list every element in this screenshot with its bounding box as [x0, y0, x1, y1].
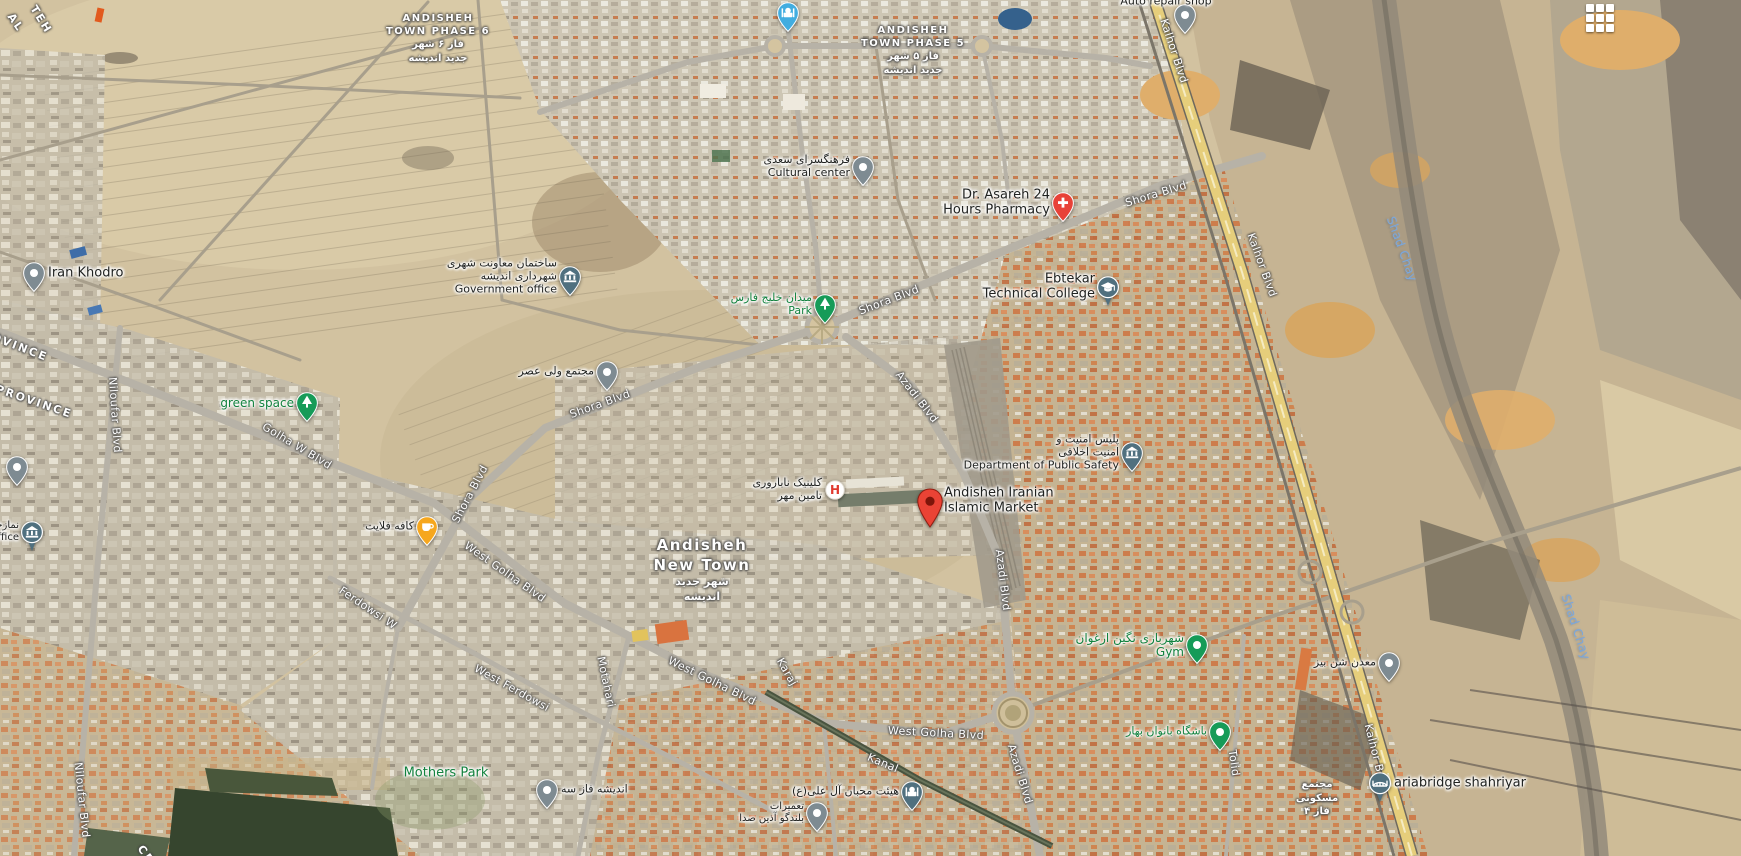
- province-label-al: AL: [5, 11, 27, 35]
- poi-label-vali-asr-complex[interactable]: مجتمع ولی عصر: [518, 366, 594, 379]
- poi-label-banovan-bahar-club[interactable]: باشگاه بانوان بهار: [1126, 726, 1207, 739]
- destination-marker-icon[interactable]: [917, 488, 943, 532]
- bank-pin-icon-government-office[interactable]: [559, 266, 581, 300]
- tree-pin-icon-green-space[interactable]: [296, 392, 318, 426]
- road-label-shora-blvd: Shora Blvd: [449, 463, 490, 525]
- water-label-shad-chay: Shad Chay: [1559, 592, 1593, 661]
- road-label-kalhor-blvd: Kalhor Blvd: [1244, 231, 1279, 298]
- poi-label-speaker-repair[interactable]: تعمیراتبلندگو آذین صدا: [739, 801, 804, 825]
- dot-pin-icon-auto-repair-shop[interactable]: [1174, 4, 1196, 38]
- road-label-azadi-blvd: Azadi Blvd: [993, 549, 1013, 612]
- poi-label-government-office[interactable]: ساختمان معاونت شهریشهرداری اندیشهGovernm…: [447, 258, 557, 297]
- green-dot-pin-icon-banovan-bahar-club[interactable]: [1209, 721, 1231, 755]
- water-label-shad-chay: Shad Chay: [1384, 215, 1420, 284]
- dot-pin-icon-sand-mine[interactable]: [1378, 652, 1400, 686]
- road-label-ferdowsi-w: Ferdowsi W: [337, 584, 400, 632]
- dot-pin-icon-speaker-repair[interactable]: [806, 802, 828, 836]
- poi-label-cafe-flight[interactable]: کافه فلایت: [365, 521, 414, 534]
- poi-label-khalij-fars-park[interactable]: میدان خلیج فارسPark: [731, 292, 812, 318]
- road-label-west-golha-blvd: West Golha Blvd: [666, 654, 758, 708]
- poi-label-andisheh-phase-3[interactable]: اندیشه فاز سه: [561, 784, 628, 797]
- road-label-shora-blvd: Shora Blvd: [1124, 178, 1189, 209]
- dot-pin-icon-cultural-center[interactable]: [852, 156, 874, 190]
- apps-grid-icon[interactable]: [1586, 4, 1616, 34]
- area-label-residential-complex: مجتمعمسکونیفاز ۴: [1296, 778, 1338, 819]
- poi-label-mothers-park[interactable]: Mothers Park: [404, 765, 489, 780]
- poi-label-cultural-center[interactable]: فرهنگسرای سعدیCultural center: [764, 154, 850, 180]
- province-label-ce: CE: [135, 843, 157, 856]
- hospital-pin-icon-infertility-clinic[interactable]: H: [825, 480, 845, 504]
- school-pin-icon-ebtekar-college[interactable]: [1096, 276, 1120, 311]
- map-labels-layer: Shora BlvdShora BlvdShora BlvdShora Blvd…: [0, 0, 1741, 856]
- road-label-golha-w-blvd: Golha W Blvd: [260, 420, 334, 472]
- poi-label-office-left-edge[interactable]: نمازخانهffice: [0, 520, 19, 544]
- poi-label-sand-mine[interactable]: معدن شن بیز: [1314, 657, 1376, 670]
- dot-pin-icon-iran-khodro[interactable]: [23, 262, 45, 296]
- poi-label-mohebban-ali-heyat[interactable]: هیئت محبان آل علی(ع): [792, 786, 899, 799]
- dot-pin-icon-vali-asr-complex[interactable]: [596, 361, 618, 395]
- mosque-dark-pin-icon-mohebban-ali-heyat[interactable]: [901, 781, 923, 815]
- road-label-shora-blvd: Shora Blvd: [857, 283, 921, 318]
- road-label-west-golha-blvd: West Golha Blvd: [888, 724, 985, 742]
- province-label-teh: TEH: [27, 3, 54, 36]
- poi-label-green-space[interactable]: green space: [220, 396, 294, 410]
- road-label-kanal: Kanal: [865, 751, 900, 776]
- road-label-west-golha-blvd: West Golha Blvd: [462, 539, 548, 605]
- poi-label-infertility-clinic[interactable]: کلینیک ناباروریتامین مهر: [752, 477, 822, 503]
- poi-label-asareh-pharmacy[interactable]: Dr. Asareh 24Hours Pharmacy: [943, 188, 1050, 219]
- poi-label-ebtekar-college[interactable]: EbtekarTechnical College: [983, 272, 1095, 303]
- dot-pin-icon-andisheh-phase-3[interactable]: [536, 779, 558, 813]
- poi-label-iran-khodro[interactable]: Iran Khodro: [48, 265, 124, 280]
- cafe-pin-icon-cafe-flight[interactable]: [416, 516, 438, 550]
- road-label-motahari: Motahari: [594, 655, 617, 708]
- bridge-pin-icon-ariabridge-shahriyar[interactable]: [1368, 772, 1392, 807]
- road-label-niloufar-blvd: Niloufar Blvd: [72, 762, 93, 839]
- bank-pin-icon-public-safety[interactable]: [1121, 442, 1143, 476]
- poi-label-gym[interactable]: شهربازی نگین ارغوانGym: [1076, 631, 1185, 659]
- road-label-niloufar-blvd: Niloufar Blvd: [106, 377, 124, 454]
- dot-pin-icon-poi-left-edge[interactable]: [6, 456, 28, 490]
- province-label-province: PROVINCE: [0, 382, 74, 421]
- road-label-kalhor-b: Kalhor B: [1362, 723, 1387, 774]
- svg-text:H: H: [830, 483, 840, 497]
- poi-label-public-safety[interactable]: پلیس امنیت وامنیت اخلاقیDepartment of Pu…: [964, 434, 1119, 473]
- province-label-ovince: OVINCE: [0, 330, 50, 364]
- bank-circle-pin-icon-office-left-edge[interactable]: [20, 521, 44, 556]
- poi-label-auto-repair-shop[interactable]: Auto repair shop: [1120, 0, 1211, 8]
- road-label-karaj: Karaj: [774, 656, 800, 689]
- area-label-town-phase-5: ANDISHEHTOWN PHASE 5فاز ۵ شهرجدید اندیشه: [861, 24, 965, 77]
- tree-pin-icon-khalij-fars-park[interactable]: [814, 294, 836, 328]
- area-label-andisheh-new-town: AndishehNew Townشهر جدیداندیشه: [654, 536, 751, 605]
- poi-label-ariabridge-shahriyar[interactable]: ariabridge shahriyar: [1394, 775, 1526, 790]
- road-label-west-ferdowsi: West Ferdowsi: [472, 662, 552, 714]
- poi-label-islamic-market[interactable]: Andisheh IranianIslamic Market: [944, 486, 1054, 517]
- mosque-pin-icon-mosque-north[interactable]: [777, 2, 799, 36]
- pharmacy-pin-icon-asareh-pharmacy[interactable]: [1052, 192, 1074, 226]
- road-label-azadi-blvd: Azadi Blvd: [1005, 743, 1035, 806]
- road-label-azadi-blvd: Azadi Blvd: [893, 369, 941, 426]
- green-dot-pin-icon-gym[interactable]: [1186, 634, 1208, 668]
- satellite-map[interactable]: Shora BlvdShora BlvdShora BlvdShora Blvd…: [0, 0, 1741, 856]
- area-label-town-phase-6: ANDISHEHTOWN PHASE 6فاز ۶ شهرجدید اندیشه: [386, 12, 490, 65]
